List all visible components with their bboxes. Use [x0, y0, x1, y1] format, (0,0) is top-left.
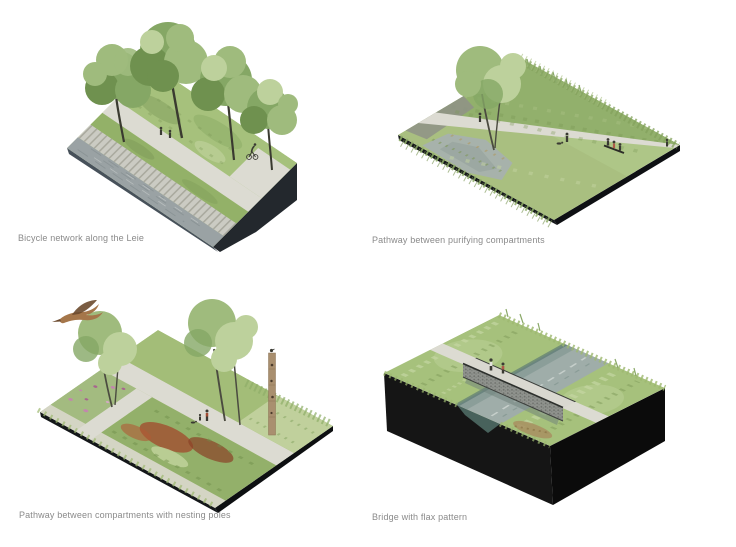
figure-caption: Bicycle network along the Leie: [18, 233, 144, 243]
figure-flax-bridge: Bridge with flax pattern: [368, 273, 736, 547]
figure-caption: Pathway between purifying compartments: [372, 235, 545, 245]
person-under-tree: [479, 113, 482, 122]
purifying-compartments-illustration: [368, 0, 736, 273]
top-surface: [398, 60, 680, 220]
flax-bridge-illustration: [368, 273, 736, 547]
diagram-sheet: Bicycle network along the Leie: [0, 0, 736, 547]
figure-caption: Bridge with flax pattern: [372, 512, 467, 522]
figure-caption: Pathway between compartments with nestin…: [19, 510, 231, 520]
nesting-pole: [269, 349, 276, 435]
person-far-right: [666, 139, 668, 147]
figure-purifying-compartments: Pathway between purifying compartments: [368, 0, 736, 273]
nesting-poles-illustration: [0, 273, 368, 547]
figure-nesting-poles: Pathway between compartments with nestin…: [0, 273, 368, 547]
figure-bicycle-network: Bicycle network along the Leie: [0, 0, 368, 273]
